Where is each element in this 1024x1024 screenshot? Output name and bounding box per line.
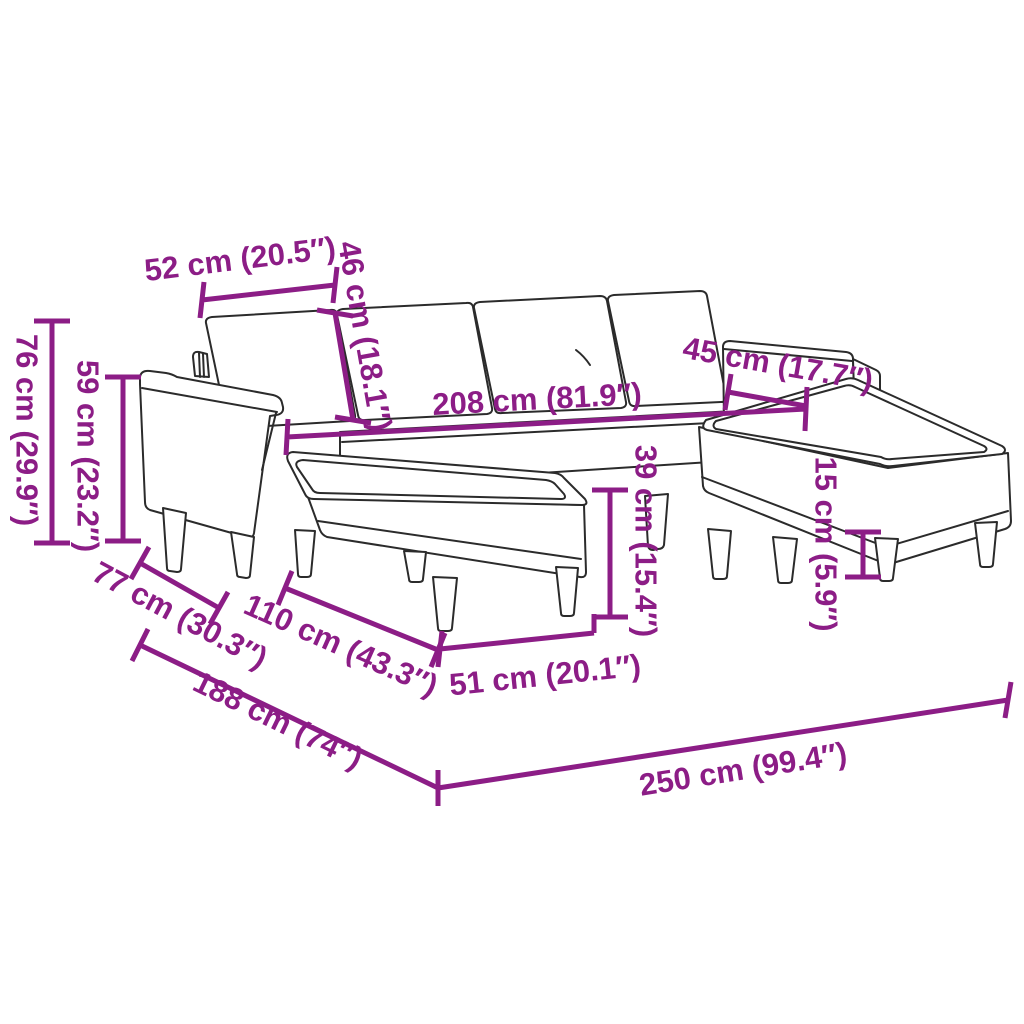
dimension-label-39cm: 39 cm (15.4″) [629,445,664,637]
dimension-39cm: 39 cm (15.4″) [592,445,664,637]
dimension-line [592,490,628,617]
footstool-right [699,378,1011,583]
dimension-label-250cm: 250 cm (99.4″) [637,735,849,802]
dimension-label-59cm: 59 cm (23.2″) [71,360,106,552]
dimension-76cm: 76 cm (29.9″) [10,321,71,543]
armrest-leg [231,532,254,578]
footstool-leg [556,567,578,616]
dimension-label-52cm: 52 cm (20.5″) [142,230,337,288]
dimension-label-188cm: 188 cm (74″) [188,664,368,776]
left-armrest [140,371,283,578]
dimension-59cm: 59 cm (23.2″) [71,360,142,552]
dimension-diagram: 52 cm (20.5″) 46 cm (18.1″) 76 cm (29.9″… [0,0,1024,1024]
dimension-52cm: 52 cm (20.5″) [142,230,337,318]
dimension-line [105,377,141,541]
armrest-leg [163,508,186,572]
footstool-left-body [308,497,586,577]
sofa-back-frame [193,352,209,377]
footstool-leg [404,551,426,582]
footstool-leg [708,529,731,579]
footstool-leg [295,530,315,577]
footstool-leg [433,577,457,631]
dimension-label-51cm: 51 cm (20.1″) [448,648,643,703]
dimension-250cm: 250 cm (99.4″) [438,682,1011,806]
footstool-leg [773,537,797,583]
footstool-leg [975,522,997,567]
dimension-label-15cm: 15 cm (5.9″) [809,456,844,631]
dimension-51cm: 51 cm (20.1″) [438,614,642,702]
footstool-left [287,452,586,631]
dimension-110cm: 110 cm (43.3″) [239,571,445,703]
dimension-label-76cm: 76 cm (29.9″) [10,334,45,526]
sofa-dimension-drawing: 52 cm (20.5″) 46 cm (18.1″) 76 cm (29.9″… [0,0,1024,1024]
sofa-drawing [140,291,1011,631]
